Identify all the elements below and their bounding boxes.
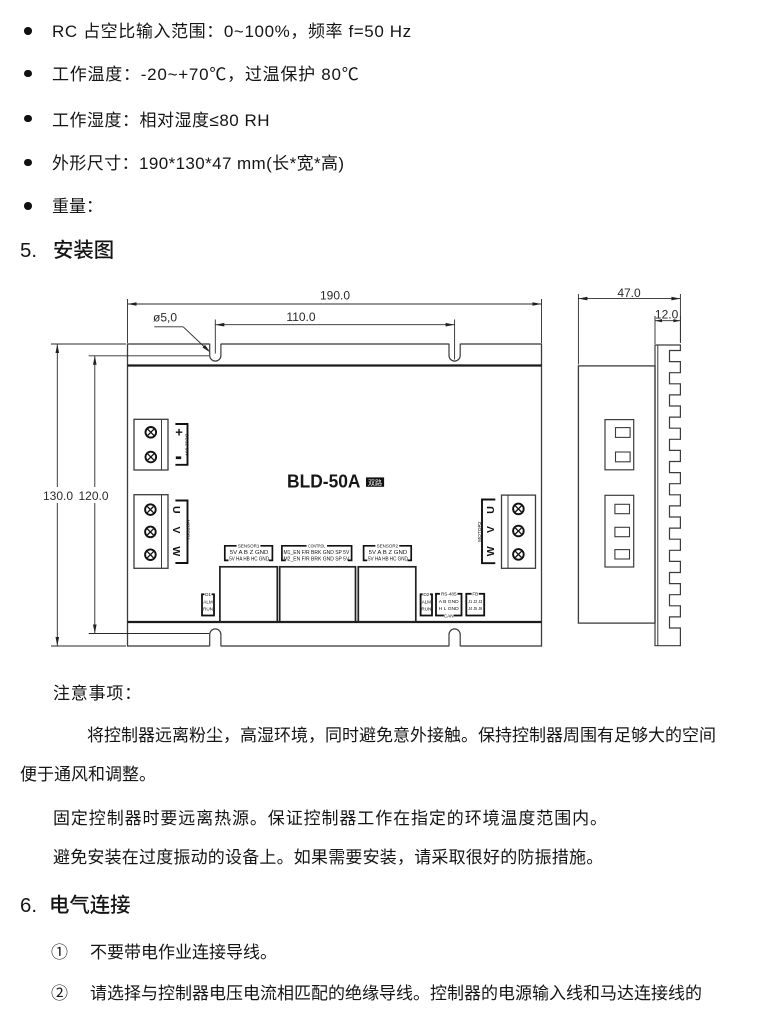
svg-text:ALM: ALM (422, 600, 432, 605)
svg-text:110.0: 110.0 (286, 310, 315, 324)
svg-text:H L GND: H L GND (439, 606, 460, 611)
svg-text:SENSOR2: SENSOR2 (377, 544, 399, 549)
svg-text:V: V (485, 526, 497, 533)
svg-text:J1 J2 J3: J1 J2 J3 (468, 599, 482, 604)
svg-text:W: W (485, 546, 497, 556)
svg-text:J4 J5 J6: J4 J5 J6 (468, 606, 482, 611)
svg-text:47.0: 47.0 (617, 286, 641, 300)
svg-text:D1: D1 (205, 592, 211, 597)
svg-text:5V HA HB HC GND: 5V HA HB HC GND (229, 557, 269, 563)
svg-text:U: U (170, 506, 182, 514)
svg-text:RS-485: RS-485 (441, 591, 457, 596)
svg-text:M2_EN F/R BRK GND SP 5V: M2_EN F/R BRK GND SP 5V (284, 557, 350, 563)
svg-text:A B GND: A B GND (439, 599, 460, 604)
svg-text:5V A B Z GND: 5V A B Z GND (369, 550, 408, 556)
svg-text:BLD-50A: BLD-50A (287, 472, 361, 492)
svg-text:+: + (175, 424, 183, 439)
svg-text:双路: 双路 (368, 478, 382, 487)
svg-text:M1_EN F/R BRK GND SP 5V: M1_EN F/R BRK GND SP 5V (284, 550, 350, 556)
svg-text:CONTROL: CONTROL (308, 544, 325, 549)
svg-text:MOTOR2: MOTOR2 (477, 521, 483, 542)
svg-text:12.0: 12.0 (655, 307, 679, 321)
svg-text:V: V (170, 526, 182, 533)
svg-text:CAN: CAN (444, 613, 454, 618)
svg-text:DC12-60V: DC12-60V (184, 434, 190, 457)
svg-text:5V A B Z GND: 5V A B Z GND (230, 550, 269, 556)
svg-text:D2: D2 (423, 592, 429, 597)
svg-text:RUN: RUN (203, 606, 213, 611)
svg-text:U: U (485, 506, 497, 514)
svg-text:120.0: 120.0 (78, 489, 108, 503)
svg-text:W: W (170, 546, 182, 556)
svg-text:SENSOR1: SENSOR1 (238, 544, 260, 549)
svg-text:ALM: ALM (203, 600, 213, 605)
svg-text:ø5,0: ø5,0 (153, 310, 177, 324)
svg-text:190.0: 190.0 (320, 289, 350, 303)
svg-text:130.0: 130.0 (43, 489, 73, 503)
svg-text:5V HA HB HC GND: 5V HA HB HC GND (368, 557, 408, 563)
svg-text:MOTOR1: MOTOR1 (184, 520, 190, 541)
svg-text:FB: FB (472, 591, 478, 596)
svg-text:RUN: RUN (421, 606, 431, 611)
